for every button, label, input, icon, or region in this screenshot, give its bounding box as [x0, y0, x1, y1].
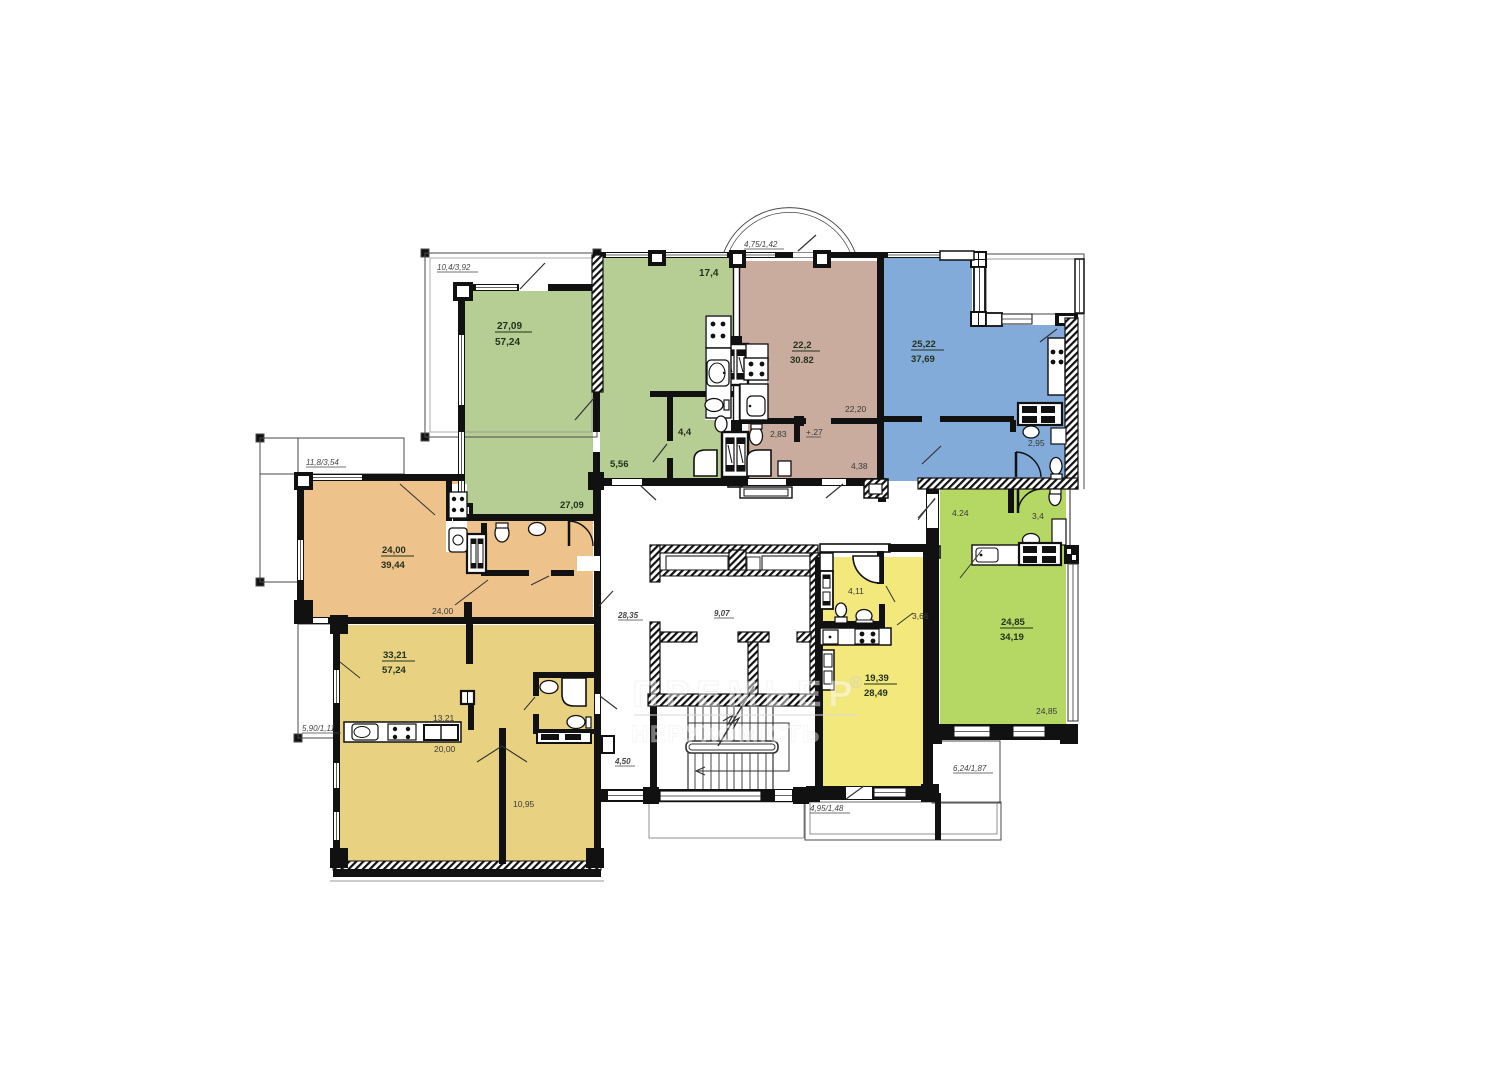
svg-text:28,49: 28,49 [864, 688, 888, 699]
svg-text:4,95/1,48: 4,95/1,48 [810, 804, 844, 813]
svg-text:4.24: 4.24 [952, 508, 969, 518]
svg-text:30.82: 30.82 [790, 355, 814, 366]
svg-text:33,21: 33,21 [383, 650, 407, 661]
svg-text:4,11: 4,11 [848, 586, 864, 596]
svg-text:57,24: 57,24 [382, 665, 406, 676]
svg-text:+.27: +.27 [806, 427, 823, 437]
svg-text:R: R [853, 679, 859, 688]
svg-text:11,8/3,54: 11,8/3,54 [306, 458, 339, 467]
svg-text:24,85: 24,85 [1036, 706, 1058, 716]
svg-text:10,4/3,92: 10,4/3,92 [437, 263, 471, 272]
svg-text:3,4: 3,4 [1032, 511, 1044, 521]
svg-text:39,44: 39,44 [381, 560, 405, 571]
svg-text:5,90/1,11: 5,90/1,11 [302, 724, 335, 733]
svg-text:57,24: 57,24 [495, 337, 520, 348]
svg-text:НЕРУХОМІСТЬ: НЕРУХОМІСТЬ [631, 721, 821, 748]
svg-text:6,24/1,87: 6,24/1,87 [953, 764, 987, 773]
svg-text:ПРЕМЬЕР: ПРЕМЬЕР [633, 673, 860, 714]
svg-text:22,2: 22,2 [793, 340, 812, 351]
svg-text:3,66: 3,66 [912, 611, 929, 621]
svg-text:19,39: 19,39 [865, 673, 889, 684]
svg-text:4,38: 4,38 [851, 461, 868, 471]
svg-text:9,07: 9,07 [714, 609, 730, 618]
svg-text:17,4: 17,4 [699, 268, 719, 279]
svg-text:24,00: 24,00 [382, 545, 406, 556]
svg-text:13,21: 13,21 [433, 713, 455, 723]
svg-text:10,95: 10,95 [513, 799, 535, 809]
svg-text:34,19: 34,19 [1000, 632, 1024, 643]
svg-text:5,56: 5,56 [610, 459, 629, 470]
svg-text:4,4: 4,4 [678, 427, 692, 438]
svg-text:37,69: 37,69 [911, 354, 935, 365]
svg-text:2,95: 2,95 [1028, 438, 1045, 448]
svg-text:24,85: 24,85 [1001, 617, 1025, 628]
svg-text:4,75/1,42: 4,75/1,42 [744, 240, 778, 249]
svg-text:24,00: 24,00 [432, 606, 454, 616]
svg-text:22,20: 22,20 [845, 404, 867, 414]
svg-text:25,22: 25,22 [912, 339, 936, 350]
svg-text:27,09: 27,09 [560, 500, 584, 511]
svg-text:28,35: 28,35 [617, 611, 639, 620]
svg-text:4,50: 4,50 [614, 757, 631, 766]
svg-text:20,00: 20,00 [434, 744, 456, 754]
svg-text:2,83: 2,83 [770, 429, 787, 439]
svg-text:27,09: 27,09 [497, 321, 522, 332]
